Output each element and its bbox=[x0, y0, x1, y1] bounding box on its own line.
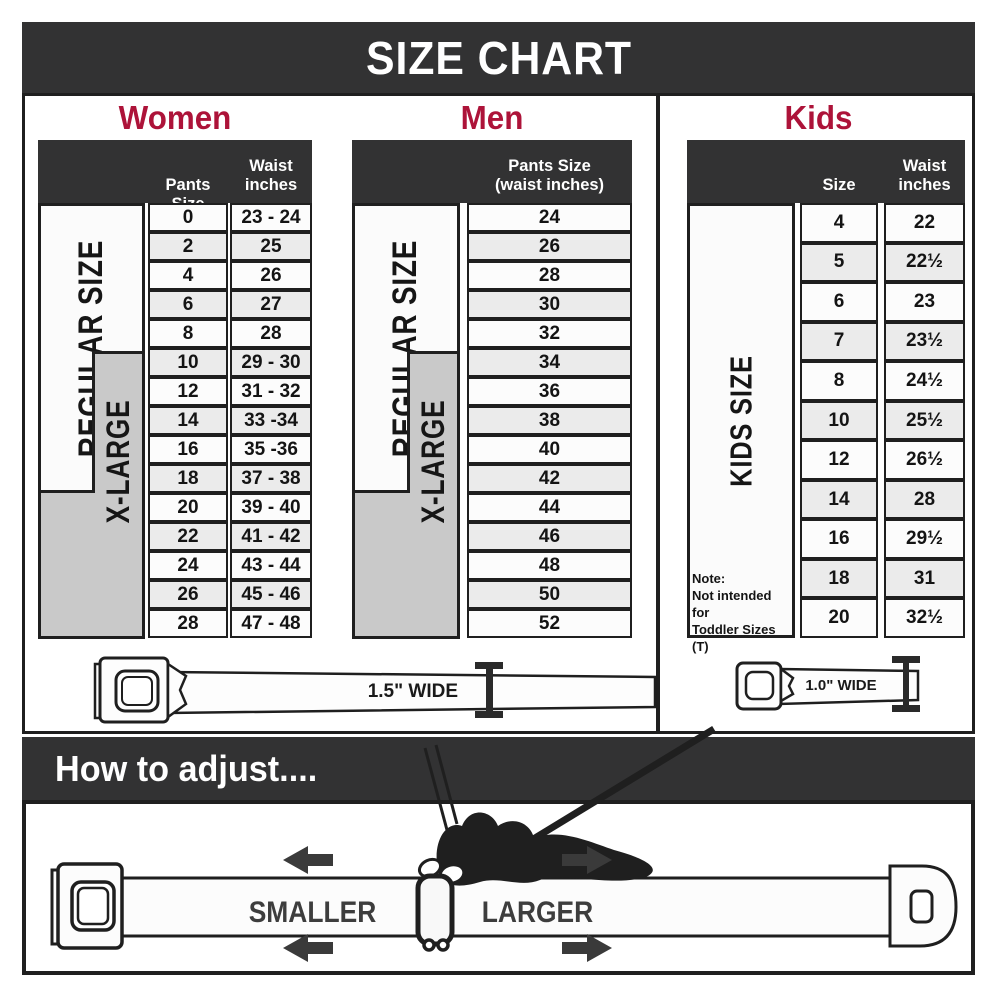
table-cell: 22 bbox=[148, 522, 228, 551]
table-cell: 40 bbox=[467, 435, 632, 464]
table-cell: 6 bbox=[148, 290, 228, 319]
adult-belt-width-label: 1.5" WIDE bbox=[300, 681, 458, 703]
men-table-header: Pants Size(waist inches) bbox=[352, 140, 632, 203]
table-cell: 32½ bbox=[884, 598, 965, 638]
women-xlarge-label-wrap: X-LARGE bbox=[92, 351, 145, 571]
table-cell: 43 - 44 bbox=[230, 551, 312, 580]
table-cell: 10 bbox=[800, 401, 878, 441]
table-cell: 24 bbox=[148, 551, 228, 580]
table-cell: 22½ bbox=[884, 243, 965, 283]
men-size-column: 242628303234363840424446485052 bbox=[467, 203, 632, 638]
table-cell: 6 bbox=[800, 282, 878, 322]
kids-size-column: 45678101214161820 bbox=[800, 203, 878, 638]
table-cell: 52 bbox=[467, 609, 632, 638]
men-xlarge-label-wrap: X-LARGE bbox=[407, 351, 460, 571]
table-cell: 26½ bbox=[884, 440, 965, 480]
kids-table-header: Size Waistinches bbox=[687, 140, 965, 203]
table-cell: 14 bbox=[148, 406, 228, 435]
table-cell: 25 bbox=[230, 232, 312, 261]
table-cell: 8 bbox=[148, 319, 228, 348]
table-cell: 28 bbox=[148, 609, 228, 638]
table-cell: 25½ bbox=[884, 401, 965, 441]
table-cell: 29½ bbox=[884, 519, 965, 559]
panel-divider bbox=[656, 93, 660, 734]
table-cell: 23½ bbox=[884, 322, 965, 362]
table-cell: 18 bbox=[148, 464, 228, 493]
table-cell: 4 bbox=[800, 203, 878, 243]
men-heading: Men bbox=[359, 99, 625, 137]
table-cell: 22 bbox=[884, 203, 965, 243]
table-cell: 28 bbox=[230, 319, 312, 348]
smaller-label: SMALLER bbox=[249, 896, 377, 930]
table-cell: 0 bbox=[148, 203, 228, 232]
table-cell: 27 bbox=[230, 290, 312, 319]
kids-col-waist-label: Waistinches bbox=[884, 157, 965, 196]
table-cell: 34 bbox=[467, 348, 632, 377]
kids-col-size-label: Size bbox=[800, 176, 878, 195]
table-cell: 35 -36 bbox=[230, 435, 312, 464]
table-cell: 23 bbox=[884, 282, 965, 322]
table-cell: 33 -34 bbox=[230, 406, 312, 435]
table-cell: 20 bbox=[800, 598, 878, 638]
table-cell: 50 bbox=[467, 580, 632, 609]
table-cell: 16 bbox=[148, 435, 228, 464]
size-chart-page: SIZE CHART Women Men Kids Pants Size Wai… bbox=[0, 0, 1000, 1000]
table-cell: 48 bbox=[467, 551, 632, 580]
table-cell: 8 bbox=[800, 361, 878, 401]
table-cell: 28 bbox=[884, 480, 965, 520]
table-cell: 29 - 30 bbox=[230, 348, 312, 377]
table-cell: 12 bbox=[148, 377, 228, 406]
table-cell: 24½ bbox=[884, 361, 965, 401]
adjust-heading: How to adjust.... bbox=[55, 748, 317, 790]
kids-heading: Kids bbox=[670, 99, 967, 137]
table-cell: 14 bbox=[800, 480, 878, 520]
table-cell: 32 bbox=[467, 319, 632, 348]
women-table-header: Pants Size Waistinches bbox=[38, 140, 312, 203]
table-cell: 26 bbox=[148, 580, 228, 609]
table-cell: 16 bbox=[800, 519, 878, 559]
larger-label: LARGER bbox=[478, 896, 597, 930]
women-col-waist-label: Waistinches bbox=[230, 157, 312, 196]
table-cell: 4 bbox=[148, 261, 228, 290]
adjust-band: How to adjust.... bbox=[22, 737, 975, 800]
table-cell: 2 bbox=[148, 232, 228, 261]
adjust-illustration-box bbox=[22, 800, 975, 975]
kids-belt-width-label: 1.0" WIDE bbox=[797, 677, 885, 694]
table-cell: 44 bbox=[467, 493, 632, 522]
table-cell: 47 - 48 bbox=[230, 609, 312, 638]
women-waist-column: 23 - 242526272829 - 3031 - 3233 -3435 -3… bbox=[230, 203, 312, 638]
table-cell: 39 - 40 bbox=[230, 493, 312, 522]
table-cell: 12 bbox=[800, 440, 878, 480]
table-cell: 23 - 24 bbox=[230, 203, 312, 232]
women-heading: Women bbox=[45, 99, 305, 137]
table-cell: 30 bbox=[467, 290, 632, 319]
kids-waist-column: 2222½2323½24½25½26½2829½3132½ bbox=[884, 203, 965, 638]
men-col-label: Pants Size(waist inches) bbox=[467, 157, 632, 196]
kids-note: Note:Not intended forToddler Sizes (T) bbox=[692, 571, 792, 655]
men-xlarge-label: X-LARGE bbox=[415, 399, 452, 523]
title-band: SIZE CHART bbox=[22, 22, 975, 93]
table-cell: 31 bbox=[884, 559, 965, 599]
table-cell: 26 bbox=[230, 261, 312, 290]
table-cell: 28 bbox=[467, 261, 632, 290]
table-cell: 36 bbox=[467, 377, 632, 406]
women-xlarge-label: X-LARGE bbox=[100, 399, 137, 523]
table-cell: 45 - 46 bbox=[230, 580, 312, 609]
women-pants-column: 0246810121416182022242628 bbox=[148, 203, 228, 638]
table-cell: 46 bbox=[467, 522, 632, 551]
page-title: SIZE CHART bbox=[366, 31, 632, 85]
table-cell: 42 bbox=[467, 464, 632, 493]
table-cell: 38 bbox=[467, 406, 632, 435]
table-cell: 41 - 42 bbox=[230, 522, 312, 551]
table-cell: 31 - 32 bbox=[230, 377, 312, 406]
table-cell: 37 - 38 bbox=[230, 464, 312, 493]
table-cell: 24 bbox=[467, 203, 632, 232]
table-cell: 5 bbox=[800, 243, 878, 283]
table-cell: 20 bbox=[148, 493, 228, 522]
kids-size-label: KIDS SIZE bbox=[723, 355, 759, 487]
table-cell: 7 bbox=[800, 322, 878, 362]
table-cell: 10 bbox=[148, 348, 228, 377]
table-cell: 26 bbox=[467, 232, 632, 261]
table-cell: 18 bbox=[800, 559, 878, 599]
